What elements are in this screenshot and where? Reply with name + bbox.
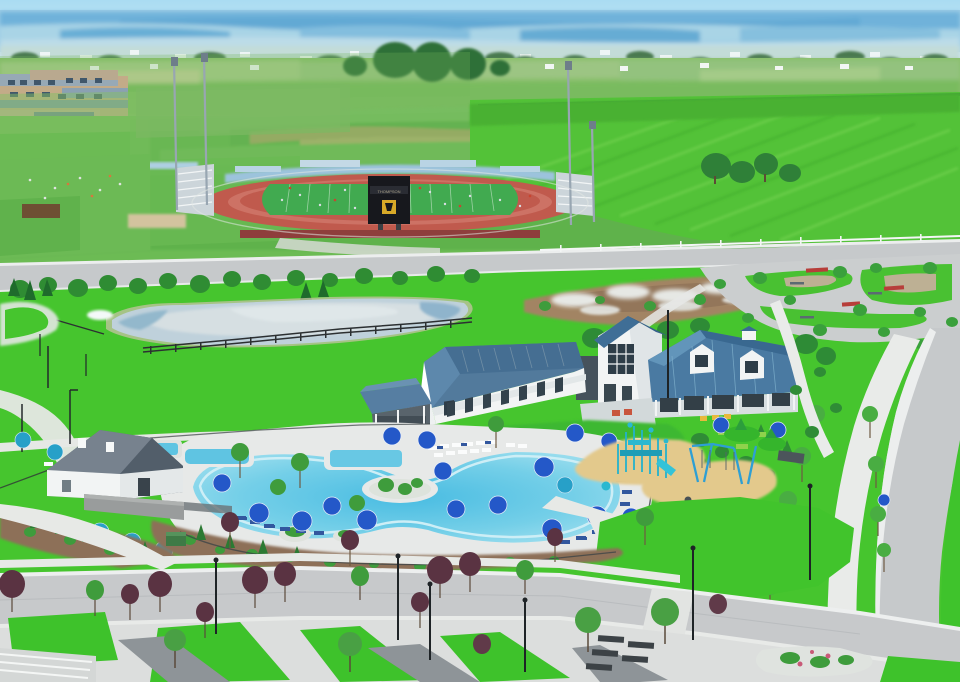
svg-text:THOMPSON: THOMPSON <box>377 189 400 194</box>
